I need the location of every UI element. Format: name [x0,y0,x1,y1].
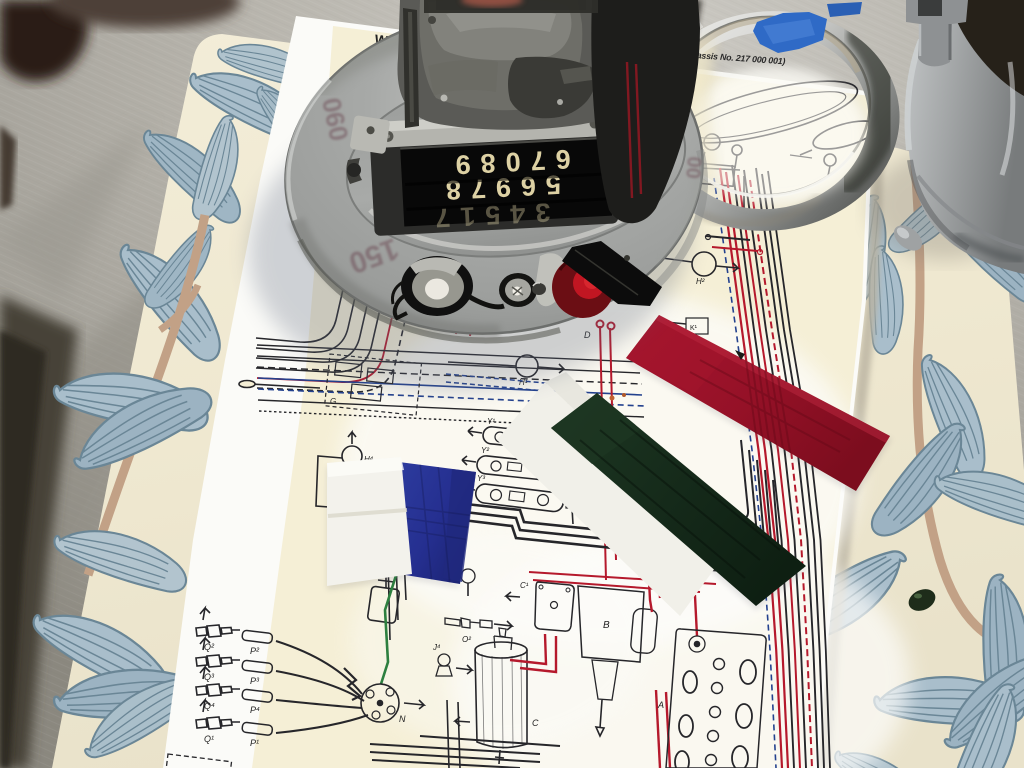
svg-text:P¹: P¹ [250,738,259,748]
svg-text:Q⁴: Q⁴ [204,701,215,711]
svg-text:Q³: Q³ [204,672,215,682]
svg-text:Q²: Q² [204,642,215,652]
svg-text:H²: H² [696,277,705,286]
svg-text:C¹: C¹ [520,581,529,590]
svg-text:K¹: K¹ [690,325,698,332]
svg-text:G: G [330,397,336,406]
svg-text:Y¹: Y¹ [487,417,495,426]
svg-text:C: C [532,718,539,728]
svg-text:P⁴: P⁴ [250,705,260,715]
svg-text:P²: P² [250,646,260,656]
svg-text:Y³: Y³ [477,474,485,483]
svg-text:O²: O² [462,635,471,644]
svg-text:J⁴: J⁴ [432,643,441,652]
svg-text:P³: P³ [250,676,260,686]
svg-text:Y²: Y² [481,446,489,455]
svg-text:A: A [657,700,664,710]
svg-text:Q¹: Q¹ [204,734,214,744]
svg-text:B: B [603,620,610,631]
svg-text:N: N [399,714,406,724]
